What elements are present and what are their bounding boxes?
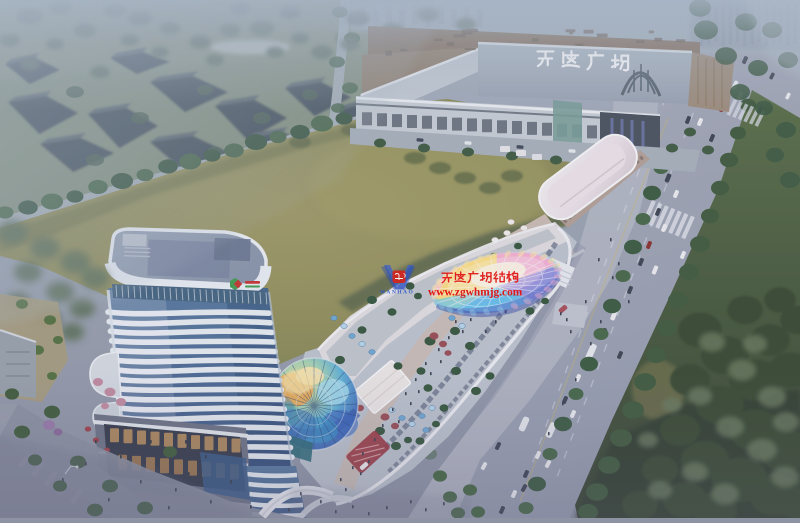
svg-text:WANHAO: WANHAO (380, 290, 414, 296)
svg-text:www.zgwhmjg.com: www.zgwhmjg.com (428, 287, 523, 299)
